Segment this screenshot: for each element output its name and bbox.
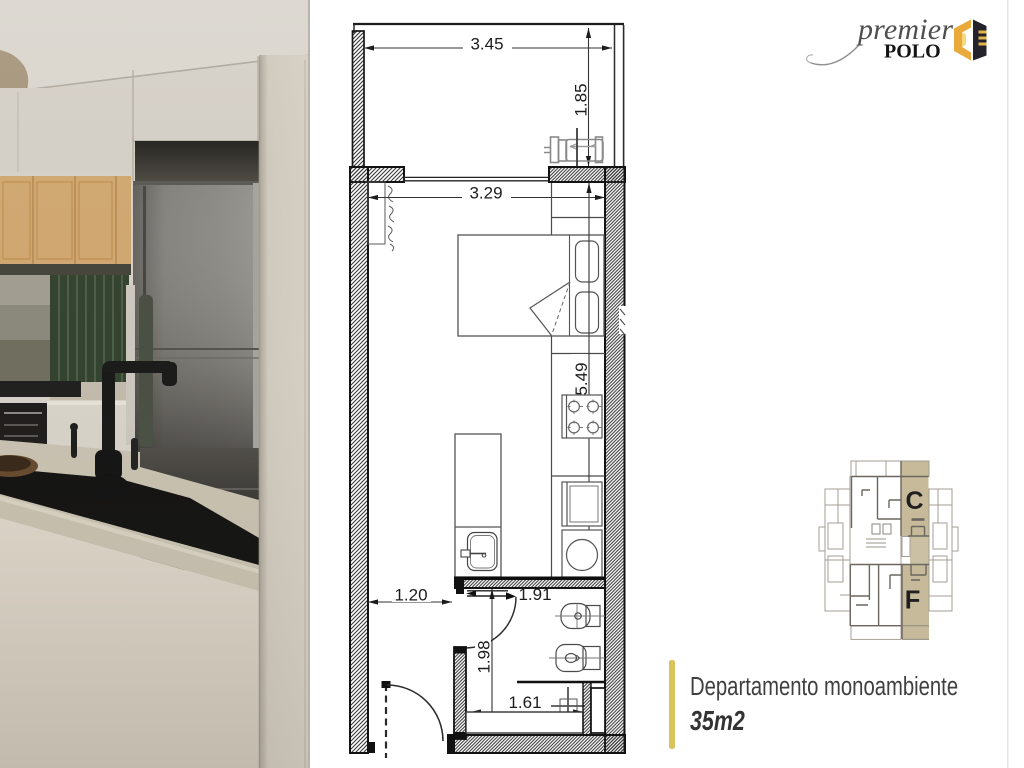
svg-text:5.49: 5.49: [572, 362, 591, 395]
svg-text:1.61: 1.61: [508, 693, 541, 712]
svg-text:F: F: [905, 587, 921, 615]
svg-text:3.45: 3.45: [470, 35, 503, 54]
svg-text:POLO: POLO: [884, 41, 941, 63]
svg-text:Departamento monoambiente: Departamento monoambiente: [690, 672, 958, 701]
svg-text:1.98: 1.98: [475, 640, 494, 673]
svg-text:35m2: 35m2: [690, 707, 745, 737]
svg-text:1.85: 1.85: [572, 83, 591, 116]
svg-text:1.91: 1.91: [518, 585, 551, 604]
svg-text:C: C: [905, 487, 923, 515]
svg-text:3.29: 3.29: [469, 184, 502, 203]
svg-text:1.20: 1.20: [394, 586, 427, 605]
